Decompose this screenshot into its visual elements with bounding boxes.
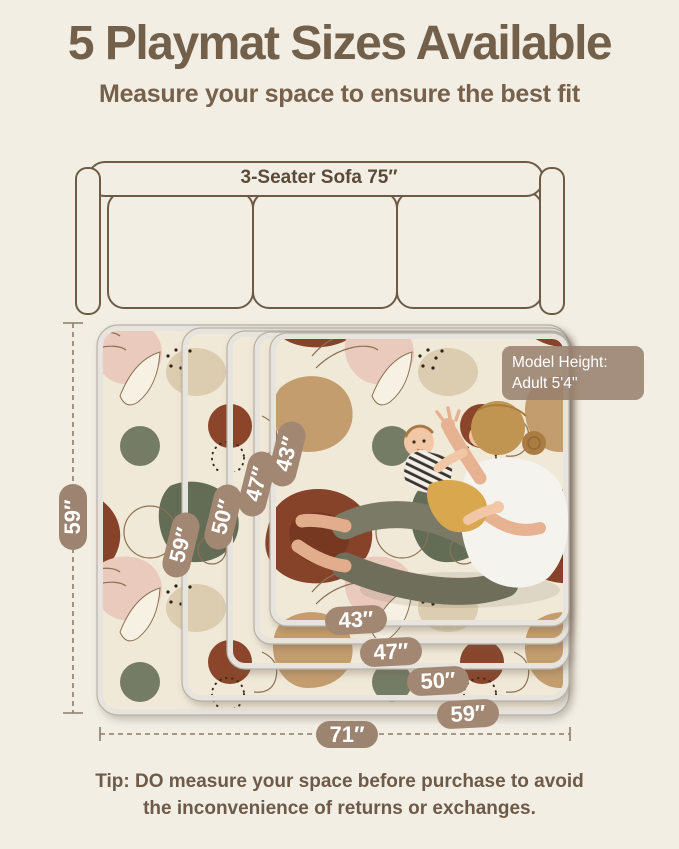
- tip-line1: Tip: DO measure your space before purcha…: [0, 768, 679, 795]
- model-height-line1: Model Height:: [512, 352, 634, 373]
- tip-line2: the inconvenience of returns or exchange…: [0, 795, 679, 822]
- size-badge-bottom-47: 47″: [359, 636, 422, 667]
- sofa-size-label: 3-Seater Sofa 75″: [76, 167, 562, 189]
- page-title: 5 Playmat Sizes Available: [0, 16, 679, 71]
- sofa-armrest-right: [540, 168, 564, 314]
- sofa-seat: [397, 192, 542, 308]
- tip-text: Tip: DO measure your space before purcha…: [0, 768, 679, 822]
- page-subtitle: Measure your space to ensure the best fi…: [0, 80, 679, 109]
- sofa-seat: [108, 192, 253, 308]
- model-height-badge: Model Height: Adult 5'4'': [502, 346, 644, 400]
- height-dimension-badge: 59″: [59, 484, 87, 550]
- model-height-line2: Adult 5'4'': [512, 373, 634, 394]
- width-dimension-badge: 71″: [316, 721, 378, 748]
- size-badge-bottom-59: 59″: [436, 698, 499, 729]
- sofa-armrest-left: [76, 168, 100, 314]
- size-badge-bottom-43: 43″: [324, 604, 387, 635]
- size-badge-bottom-50: 50″: [406, 665, 469, 696]
- infographic-page: 5 Playmat Sizes Available Measure your s…: [0, 0, 679, 849]
- sofa-seat: [253, 192, 397, 308]
